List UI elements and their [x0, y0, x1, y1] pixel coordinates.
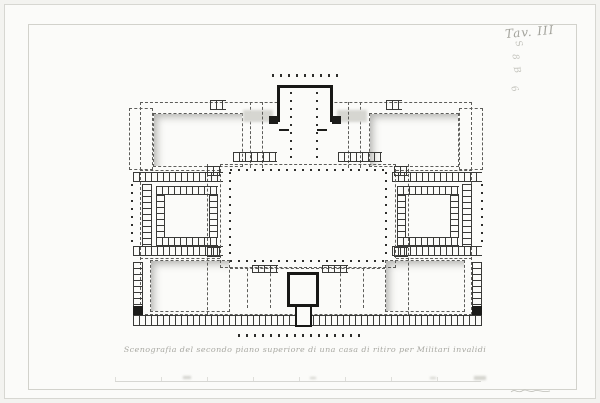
vestibule-columns: [290, 92, 292, 162]
south-rooms: [363, 268, 364, 308]
stair-chip: [394, 247, 408, 257]
stair-chip: [207, 166, 221, 176]
edge-range: [462, 184, 472, 246]
wall-stub: [279, 129, 289, 131]
central-colonnade: [229, 172, 231, 260]
pier-chip: [210, 100, 226, 110]
south-pavilion: [287, 272, 319, 307]
wall-stub: [317, 129, 327, 131]
arcade-court-right: [397, 195, 406, 237]
scanned-plate-page: Tav. III S 8 B 6 Scenografia del secondo…: [0, 0, 600, 403]
plate-caption: Scenografia del secondo piano superiore …: [110, 345, 500, 354]
row-divider: [396, 258, 472, 259]
wall-shadow: [337, 110, 367, 122]
south-rooms: [247, 268, 248, 308]
arcade-court-left: [156, 186, 218, 195]
south-rooms: [340, 268, 341, 308]
row-divider: [140, 258, 220, 259]
corner-pier: [133, 306, 143, 315]
corner-pier: [472, 306, 482, 315]
arcade-court-left: [156, 195, 165, 237]
south-stem: [295, 307, 312, 327]
central-colonnade: [230, 260, 386, 262]
court-bottom-left: [150, 260, 230, 312]
arcade-court-left: [156, 237, 218, 246]
arcade-court-right: [450, 195, 459, 237]
vestibule-columns: [316, 92, 318, 162]
arcade-strip: [233, 152, 277, 162]
central-colonnade: [230, 169, 386, 171]
engraver-signature-mark: [510, 386, 552, 396]
court-top-right: [369, 113, 459, 167]
pier-chip: [386, 100, 402, 110]
stair-chip: [207, 247, 221, 257]
scale-bar: [115, 377, 481, 382]
arcade-strip: [338, 152, 382, 162]
stair-chip: [322, 265, 348, 273]
south-colonnade: [238, 334, 366, 337]
portico-colonnade: [272, 74, 338, 77]
chapel-pier: [269, 116, 278, 124]
central-colonnade: [385, 172, 387, 260]
chapel-pier: [332, 116, 341, 124]
arcade-court-right: [397, 186, 459, 195]
stair-chip: [394, 166, 408, 176]
edge-colonnade: [481, 184, 483, 246]
central-court: [220, 164, 396, 268]
wing-top-right: [459, 108, 483, 170]
court-bottom-right: [385, 260, 465, 312]
stair-chip: [252, 265, 278, 273]
south-rooms: [270, 268, 271, 308]
arcade-court-left: [209, 195, 218, 237]
court-top-left: [153, 113, 243, 167]
edge-range: [142, 184, 152, 246]
chapel-block: [277, 85, 333, 122]
wing-top-left: [129, 108, 153, 170]
arcade-court-right: [397, 237, 459, 246]
edge-colonnade: [131, 184, 133, 246]
